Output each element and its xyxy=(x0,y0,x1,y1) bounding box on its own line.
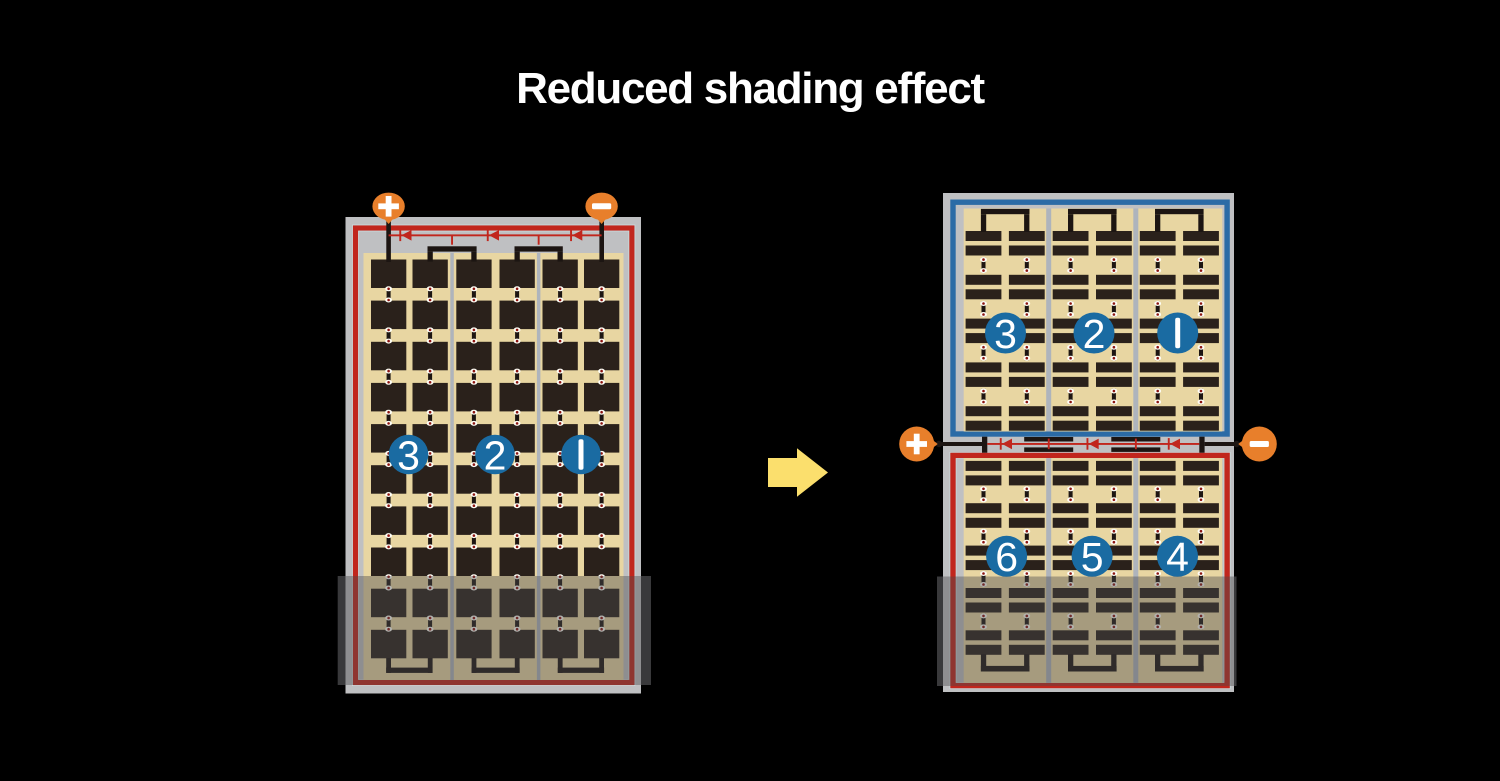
svg-text:3: 3 xyxy=(397,432,420,478)
svg-text:Reduced shading effect: Reduced shading effect xyxy=(516,64,985,113)
svg-text:3: 3 xyxy=(994,311,1017,357)
svg-text:2: 2 xyxy=(1083,311,1106,357)
svg-text:4: 4 xyxy=(1166,534,1189,580)
svg-text:5: 5 xyxy=(1081,534,1104,580)
svg-text:2: 2 xyxy=(484,432,507,478)
svg-text:6: 6 xyxy=(995,534,1018,580)
